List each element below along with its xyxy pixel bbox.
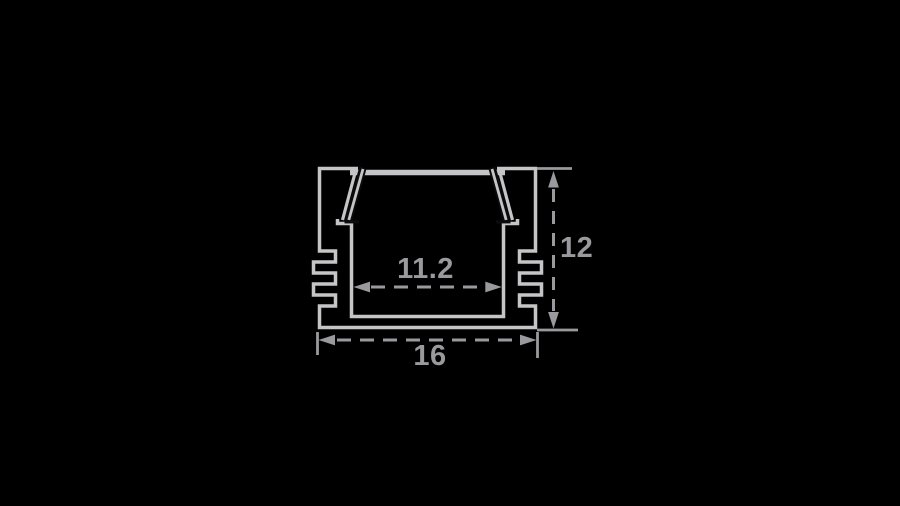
height-arrowhead-bottom xyxy=(548,312,559,329)
outer-width-arrowhead-left xyxy=(319,335,336,346)
outer-width-label: 16 xyxy=(413,340,446,372)
height-arrowhead-top xyxy=(548,171,559,188)
height-label: 12 xyxy=(560,232,593,264)
inner-width-arrowhead-left xyxy=(354,282,371,293)
dimension-outer-width: 16 xyxy=(318,332,538,372)
dimension-inner-width: 11.2 xyxy=(354,253,502,292)
diagram-canvas: 11.2 16 12 xyxy=(0,0,900,506)
dimension-height: 12 xyxy=(537,169,593,331)
inner-width-label: 11.2 xyxy=(397,253,454,285)
outer-width-arrowhead-right xyxy=(520,335,537,346)
inner-width-arrowhead-right xyxy=(485,282,502,293)
profile-body xyxy=(314,168,542,328)
profile-cross-section-drawing: 11.2 16 12 xyxy=(0,0,900,506)
profile-outer-contour xyxy=(314,169,542,328)
